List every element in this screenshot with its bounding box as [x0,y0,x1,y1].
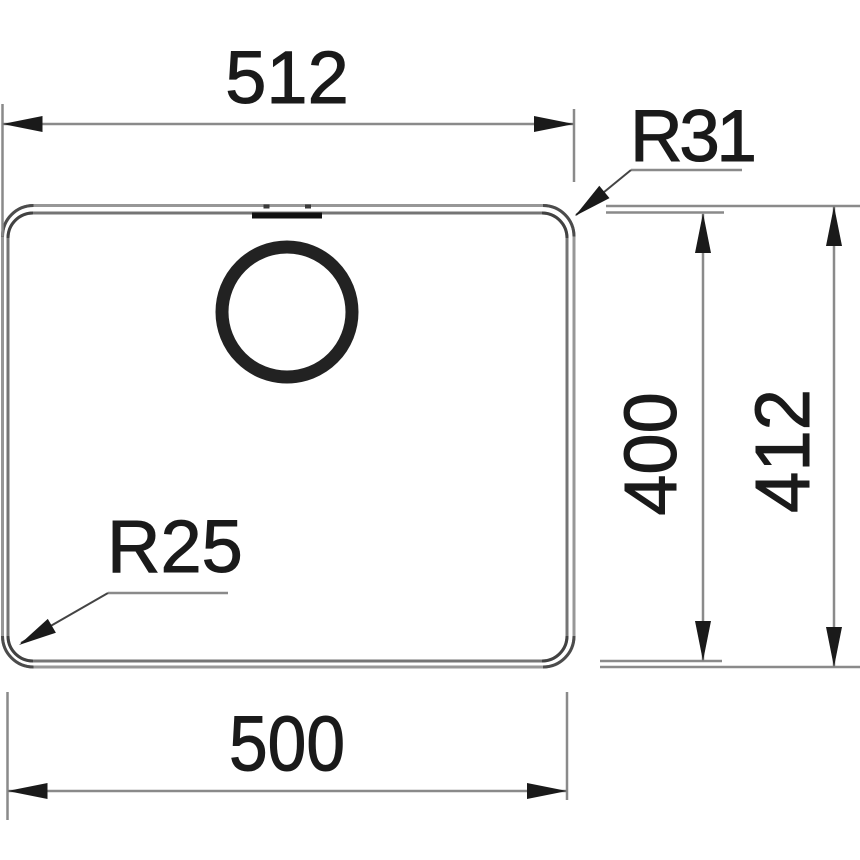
svg-text:R31: R31 [630,96,754,177]
svg-text:R25: R25 [107,505,243,588]
svg-text:512: 512 [225,36,348,119]
svg-text:500: 500 [229,699,345,787]
svg-text:412: 412 [740,389,826,513]
svg-text:400: 400 [609,392,692,515]
